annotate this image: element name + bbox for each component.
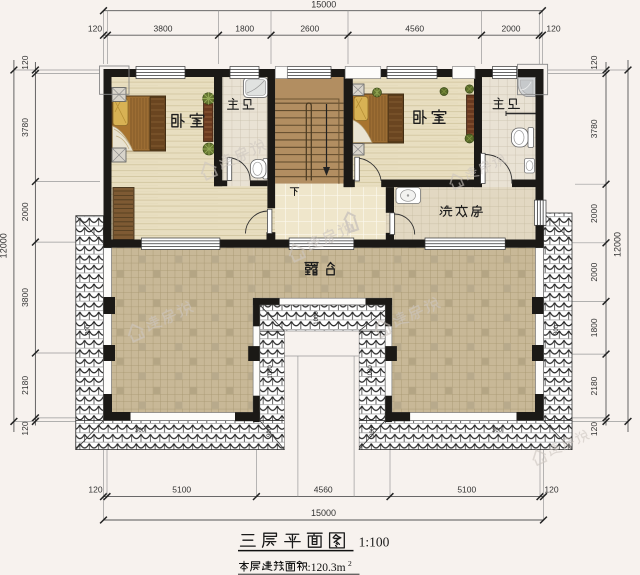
svg-text:3780: 3780 [20, 118, 30, 137]
svg-text:4560: 4560 [405, 24, 424, 34]
svg-text:5100: 5100 [172, 485, 191, 495]
svg-text:2180: 2180 [20, 376, 30, 395]
svg-text:15000: 15000 [311, 0, 336, 10]
svg-text:2600: 2600 [300, 24, 319, 34]
svg-text:1:100: 1:100 [359, 535, 390, 550]
svg-text:2000: 2000 [589, 262, 599, 281]
svg-text:120: 120 [88, 485, 102, 495]
svg-text:12000: 12000 [0, 233, 9, 258]
svg-text:300: 300 [492, 428, 503, 434]
svg-text:4560: 4560 [314, 485, 333, 495]
svg-text:3800: 3800 [154, 24, 173, 34]
svg-text:2180: 2180 [589, 376, 599, 395]
svg-text:120: 120 [20, 421, 30, 435]
svg-text:3780: 3780 [589, 119, 599, 138]
svg-text:3800: 3800 [20, 288, 30, 307]
svg-text:5100: 5100 [457, 485, 476, 495]
svg-text:120: 120 [20, 55, 30, 69]
svg-text:1000: 1000 [268, 365, 274, 379]
svg-text:1800: 1800 [235, 24, 254, 34]
svg-text:2000: 2000 [20, 202, 30, 221]
svg-text:12000: 12000 [613, 232, 623, 257]
svg-text:120: 120 [589, 55, 599, 69]
svg-text:900: 900 [370, 426, 376, 437]
svg-text:120: 120 [546, 24, 560, 34]
svg-text:2: 2 [348, 559, 352, 568]
svg-text:120: 120 [589, 422, 599, 436]
svg-text:120: 120 [88, 24, 102, 34]
svg-text:900: 900 [267, 426, 273, 437]
svg-text:2000: 2000 [502, 24, 521, 34]
svg-text:2000: 2000 [589, 204, 599, 223]
svg-text:1800: 1800 [589, 318, 599, 337]
svg-text:1000: 1000 [314, 311, 320, 325]
svg-text:15000: 15000 [311, 508, 336, 518]
svg-text:300: 300 [86, 324, 92, 335]
svg-text::120.3m: :120.3m [308, 562, 346, 574]
svg-text:300: 300 [135, 428, 146, 434]
svg-text:1000: 1000 [368, 365, 374, 379]
svg-text:300: 300 [554, 324, 560, 335]
